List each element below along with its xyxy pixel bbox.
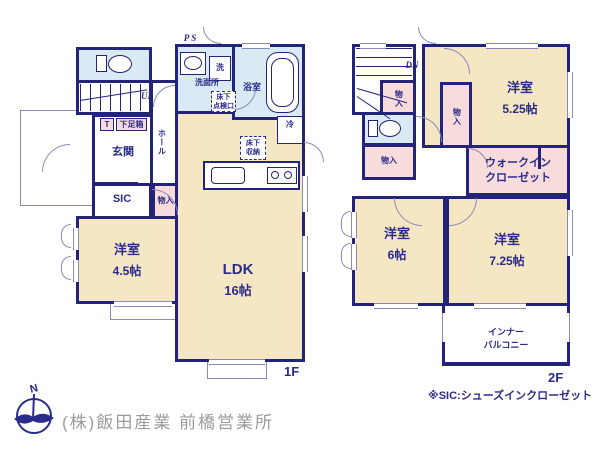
wic-label-line1: ウォークイン — [485, 157, 551, 169]
room6-name: 洋室 — [384, 226, 410, 241]
window — [242, 43, 270, 49]
vanity-basin-icon — [184, 56, 202, 70]
laundry-label: 洗 — [209, 63, 231, 73]
underfloor-label-line1: 床下 — [246, 140, 260, 147]
window — [486, 43, 538, 49]
window — [567, 72, 573, 118]
kitchen-sink-icon — [211, 167, 245, 184]
room525-name: 洋室 — [507, 80, 533, 95]
wall — [442, 362, 570, 366]
window — [567, 210, 573, 256]
room725-size: 7.25帖 — [489, 254, 524, 268]
closet-1f-label: 物入 — [152, 196, 179, 206]
up-label: UP — [134, 91, 160, 103]
hall-label: ホール — [156, 120, 166, 164]
window — [114, 301, 172, 307]
window — [474, 303, 526, 309]
compass-icon — [10, 390, 58, 438]
room525-size: 5.25帖 — [502, 102, 537, 116]
door-arc — [418, 27, 436, 44]
washroom-label: 洗面所 — [180, 78, 234, 88]
window — [351, 212, 357, 238]
floorplan-canvas: PS UP 洗 洗面所 床下点検口 浴室 T 下足箱 玄関 ホール SIC 物入… — [0, 0, 600, 450]
window — [374, 303, 418, 309]
wall — [442, 342, 445, 366]
casement-window-icon — [61, 256, 71, 280]
company-name: (株)飯田産業 前橋営業所 — [62, 408, 274, 433]
sic-note: ※SIC:シューズインクローゼット — [428, 387, 592, 403]
wall — [442, 303, 445, 313]
toilet-tank-icon — [96, 55, 107, 72]
floor-1-plan: PS UP 洗 洗面所 床下点検口 浴室 T 下足箱 玄関 ホール SIC 物入… — [70, 44, 306, 384]
inspection-label-line2: 点検口 — [213, 103, 234, 110]
closet-2f-b-label: 物入 — [362, 156, 416, 166]
genkan-label: 玄関 — [98, 145, 148, 159]
inspection-label-line1: 床下 — [217, 94, 231, 101]
bath-label: 浴室 — [234, 82, 270, 94]
ldk-name: LDK — [223, 261, 254, 278]
bathtub-inner-icon — [271, 58, 294, 107]
window — [302, 176, 308, 212]
window — [73, 260, 79, 282]
floor-1-tag: 1F — [284, 364, 299, 379]
wall — [567, 303, 570, 313]
floor-2-plan: DN 物入 物入 物入 洋室5.25帖 ウォークインクローゼット 洋室6帖 洋室… — [352, 44, 574, 389]
toilet-bowl-icon — [379, 120, 401, 137]
burner-icon — [284, 171, 292, 179]
door-arc — [203, 27, 221, 44]
casement-window-icon — [61, 224, 71, 248]
shoebox-label: 下足箱 — [116, 120, 147, 130]
balcony-label-line2: バルコニー — [484, 340, 529, 350]
room6-size: 6帖 — [388, 248, 407, 262]
wall — [92, 182, 138, 185]
window — [209, 359, 265, 365]
underfloor-label-line2: 収納 — [246, 149, 260, 156]
room725-name: 洋室 — [494, 232, 520, 247]
room45-size: 4.5帖 — [113, 264, 142, 278]
window — [73, 228, 79, 250]
fridge-label: 冷 — [278, 120, 302, 130]
sic-label: SIC — [97, 192, 147, 206]
burner-icon — [271, 171, 279, 179]
wall — [567, 342, 570, 366]
casement-window-icon — [341, 243, 351, 269]
window — [302, 236, 308, 272]
window — [351, 244, 357, 270]
wic-label-line2: クローゼット — [485, 172, 551, 184]
casement-window-icon — [341, 211, 351, 237]
room45-name: 洋室 — [114, 242, 140, 257]
dn-label: DN — [396, 60, 428, 72]
toilet-tank-icon — [368, 120, 378, 137]
t-label: T — [100, 120, 114, 130]
door-arc — [304, 142, 324, 162]
ldk-size: 16帖 — [224, 283, 251, 298]
closet-2f-a-label: 物入 — [393, 86, 403, 112]
floor-2-tag: 2F — [548, 370, 563, 385]
balcony-label-line1: インナー — [488, 327, 524, 337]
window — [360, 43, 386, 49]
wall — [150, 114, 153, 162]
closet-2f-c-label: 物入 — [451, 102, 461, 132]
ps-label: PS — [178, 33, 204, 45]
toilet-bowl-icon — [108, 55, 132, 73]
